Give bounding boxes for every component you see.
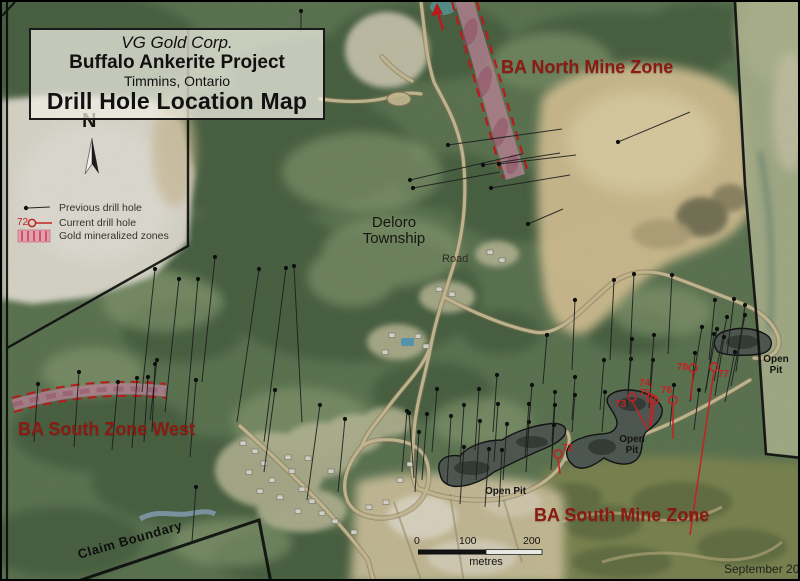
drill-hole-collar (505, 422, 509, 426)
drill-hole-collar (715, 327, 719, 331)
drill-hole-collar (553, 390, 557, 394)
drill-hole-collar (343, 417, 347, 421)
drill-hole-collar (196, 277, 200, 281)
drill-hole-collar (135, 376, 139, 380)
drill-hole-collar (36, 382, 40, 386)
drill-hole-collar (425, 412, 429, 416)
drill-hole-collar (446, 143, 450, 147)
project-location: Timmins, Ontario (31, 73, 323, 89)
drill-hole-collar (77, 370, 81, 374)
drill-hole-collar (733, 350, 737, 354)
drill-hole-collar (407, 411, 411, 415)
drill-hole-collar (652, 333, 656, 337)
drill-hole-collar (411, 186, 415, 190)
drill-hole-collar (116, 380, 120, 384)
drill-hole-collar (155, 358, 159, 362)
drill-hole-collar (213, 255, 217, 259)
drill-hole-collar (478, 419, 482, 423)
drill-hole-collar (713, 298, 717, 302)
drill-hole-collar (693, 351, 697, 355)
drill-hole-collar (284, 266, 288, 270)
drill-hole-collar (603, 390, 607, 394)
drill-hole-location-map: 727374,75767778 VG Gold Corp. Buffalo An… (0, 0, 800, 581)
drill-hole-collar (573, 298, 577, 302)
drill-hole-collar (697, 388, 701, 392)
drill-hole-collar (292, 264, 296, 268)
drill-hole-collar (462, 403, 466, 407)
drill-hole-collar (672, 383, 676, 387)
drill-hole-collar (497, 162, 501, 166)
drill-hole-collar (408, 178, 412, 182)
drill-hole-collar (194, 485, 198, 489)
drill-hole-collar (318, 403, 322, 407)
drill-hole-collar (552, 423, 556, 427)
drill-hole-collar (530, 383, 534, 387)
drill-hole-collar (632, 272, 636, 276)
project-name: Buffalo Ankerite Project (31, 52, 323, 73)
legend-symbol-zones (18, 230, 50, 242)
drill-hole-collar (630, 337, 634, 341)
drill-hole-collar (435, 387, 439, 391)
current-drill-hole-number: 78 (677, 362, 689, 373)
drill-hole-collar (299, 9, 303, 13)
drill-hole-collar (573, 375, 577, 379)
drill-hole-collar (500, 448, 504, 452)
current-drill-hole-number: 75 (639, 388, 651, 399)
drill-hole-collar (553, 403, 557, 407)
drill-hole-collar (273, 388, 277, 392)
drill-hole-collar (449, 414, 453, 418)
current-drill-hole-number: 76 (661, 385, 673, 396)
company-name: VG Gold Corp. (31, 33, 323, 52)
drill-hole-collar (481, 163, 485, 167)
drill-hole-collar (616, 140, 620, 144)
map-title: Drill Hole Location Map (31, 89, 323, 114)
current-drill-hole-number: 77 (718, 369, 730, 380)
drill-hole-collar (612, 278, 616, 282)
drill-hole-collar (573, 393, 577, 397)
drill-hole-collar (496, 402, 500, 406)
drill-hole-collar (257, 267, 261, 271)
drill-hole-collar (146, 375, 150, 379)
drill-hole-collar (743, 313, 747, 317)
drill-hole-collar (725, 315, 729, 319)
drill-hole-collar (545, 333, 549, 337)
drill-hole-collar (743, 303, 747, 307)
drill-hole-collar (495, 373, 499, 377)
drill-hole-collar (462, 445, 466, 449)
drill-hole-collar (602, 358, 606, 362)
scale-bar (418, 550, 542, 555)
drill-hole-collar (417, 430, 421, 434)
drill-hole-collar (153, 267, 157, 271)
drill-hole-collar (526, 222, 530, 226)
current-drill-hole-number: 72 (562, 443, 574, 454)
title-block: VG Gold Corp. Buffalo Ankerite Project T… (29, 28, 325, 120)
drill-hole-collar (487, 447, 491, 451)
drill-hole-collar (670, 273, 674, 277)
drill-hole-collar (732, 297, 736, 301)
drill-hole-collar (477, 387, 481, 391)
current-drill-hole-number: 73 (615, 399, 627, 410)
drill-hole-collar (700, 325, 704, 329)
drill-hole-collar (489, 186, 493, 190)
drill-hole-collar (177, 277, 181, 281)
drill-hole-collar (194, 378, 198, 382)
